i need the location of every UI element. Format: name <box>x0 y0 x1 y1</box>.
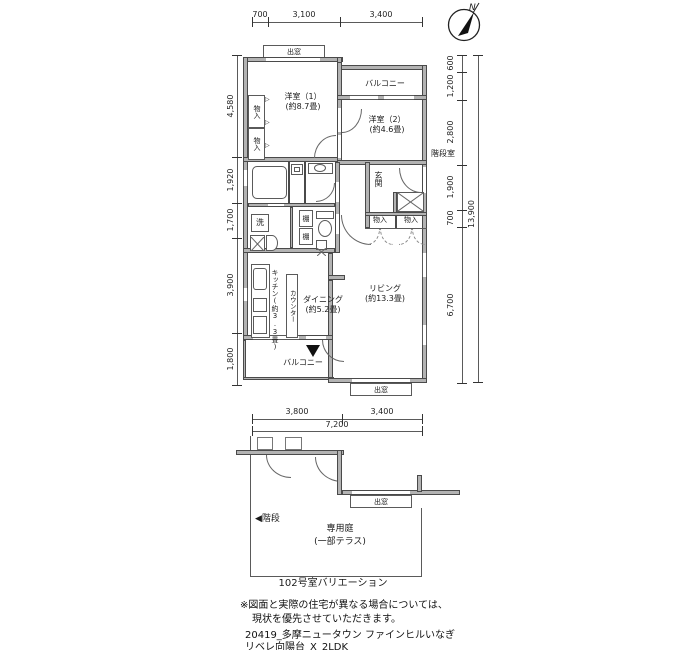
counter-label: カウンター <box>289 290 296 323</box>
water-heater-icon <box>294 167 300 172</box>
dimension-tick <box>422 414 423 424</box>
kitchen-sink-icon <box>253 268 267 290</box>
label-kitchen: キッチン(約3.3畳) <box>271 269 278 351</box>
disclaimer-line1: ※図面と実際の住宅が異なる場合については、 <box>240 596 448 611</box>
entrance-door-opening <box>423 167 426 193</box>
bedroom1-area: (約8.7畳) <box>284 102 321 112</box>
dimension-label: 6,700 <box>445 285 455 325</box>
shaft-box <box>397 192 424 212</box>
toilet-bowl-icon <box>318 220 332 237</box>
kitchen-stove-icon <box>253 316 267 334</box>
closet-box: 物入 <box>248 95 265 128</box>
window <box>384 95 414 100</box>
door-opening <box>336 214 339 234</box>
project-line2: リベレ向陽台_X_2LDK <box>245 638 348 650</box>
bay-window-label: 出窓 <box>287 47 301 57</box>
bay-window-label: 出窓 <box>374 385 388 395</box>
dimension-tick <box>457 100 467 101</box>
dimension-label: 1,920 <box>225 160 235 200</box>
paper-holder-icon <box>316 240 327 250</box>
dimension-line <box>237 55 238 385</box>
dimension-label: 1,200 <box>445 66 455 106</box>
window-opening <box>243 288 248 301</box>
bay-window-label: 出窓 <box>374 497 388 507</box>
dimension-label: 1,700 <box>225 200 235 240</box>
window-opening <box>243 170 248 186</box>
window-opening <box>422 325 427 345</box>
dimension-label: 700 <box>445 198 455 238</box>
wall <box>337 450 342 495</box>
bay-window: 出窓 <box>350 495 412 508</box>
shelf-label: 棚 <box>303 214 310 224</box>
bathtub-icon <box>252 166 287 199</box>
dimension-tick <box>232 55 242 56</box>
label-living: リビング (約13.3畳) <box>365 284 405 304</box>
washer-pan-icon <box>250 235 265 251</box>
wall <box>288 162 290 203</box>
stairs-text: 階段 <box>262 514 280 524</box>
garden-boundary-line <box>421 508 422 577</box>
dimension-tick <box>232 333 242 334</box>
wall-opening <box>352 379 410 382</box>
kitchen-unit-icon <box>253 298 267 312</box>
wall <box>395 216 397 228</box>
dimension-line <box>252 431 422 432</box>
closet-fold-door <box>367 229 380 245</box>
dimension-label: 7,200 <box>326 420 349 429</box>
compass-north-label: N <box>469 3 476 13</box>
north-arrow-icon <box>458 12 474 36</box>
closet-label: 物入 <box>253 105 260 119</box>
balcony-wall <box>243 377 334 380</box>
label-bedroom1: 洋室（1） (約8.7畳) <box>284 92 321 112</box>
dimension-label: 4,580 <box>225 86 235 126</box>
dining-area: (約5.2畳) <box>303 305 343 315</box>
dimension-tick <box>340 17 341 27</box>
bedroom2-area: (約4.6畳) <box>368 125 405 135</box>
closet-fold-door <box>380 229 393 245</box>
porch-outline <box>285 437 302 450</box>
shelf-label: 棚 <box>303 232 310 242</box>
door-arc <box>342 109 362 133</box>
floor-plan-sheet: N 700 3,100 3,400 4,580 1,920 1,700 3,90… <box>0 0 700 650</box>
label-stairwell: 階段室 <box>431 149 455 159</box>
balcony-direction-marker-icon <box>306 345 320 357</box>
door-swing-mark-icon: ▷ <box>265 142 270 150</box>
door-arc <box>322 340 344 362</box>
label-stairs: ◀階段 <box>255 514 280 525</box>
closet-box: 物入 <box>248 128 265 160</box>
bedroom1-name: 洋室（1） <box>284 92 321 102</box>
door-opening <box>338 135 341 158</box>
dining-name: ダイニング <box>303 295 343 305</box>
living-area: (約13.3畳) <box>365 294 405 304</box>
wall-opening <box>352 491 410 494</box>
closet-label: 物入 <box>253 137 260 151</box>
dimension-label: 1,800 <box>225 339 235 379</box>
closet-fold-door <box>399 229 412 245</box>
door-arc <box>314 135 336 158</box>
wall <box>304 162 306 203</box>
garden-boundary-line <box>250 436 251 577</box>
wall <box>337 65 427 70</box>
shelf-box: 棚 <box>299 210 313 227</box>
door-arc <box>316 183 335 202</box>
dimension-tick <box>268 17 269 27</box>
label-garden: 専用庭 <box>326 524 353 535</box>
toilet-tank-icon <box>316 211 334 219</box>
vanity-basin-icon <box>314 164 326 172</box>
wall <box>335 162 340 253</box>
dimension-tick <box>252 414 253 424</box>
dimension-tick <box>473 55 483 56</box>
dimension-label: 700 <box>252 10 267 19</box>
dimension-tick <box>457 165 467 166</box>
dimension-tick <box>252 426 253 436</box>
window-opening <box>422 253 427 277</box>
wall <box>417 475 422 492</box>
dimension-label-overall: 13,900 <box>466 194 476 234</box>
balcony-wall <box>243 340 246 380</box>
variation-caption: 102号室バリエーション <box>279 578 388 591</box>
door-opening <box>338 108 341 132</box>
dimension-label: 2,800 <box>445 112 455 152</box>
dimension-label: 3,800 <box>286 407 309 416</box>
window <box>350 95 378 100</box>
dimension-label: 3,100 <box>293 10 316 19</box>
dimension-label: 3,400 <box>370 10 393 19</box>
porch-outline <box>257 437 273 450</box>
dimension-tick <box>232 157 242 158</box>
dimension-line <box>478 55 479 383</box>
closet-fold-door <box>412 229 425 245</box>
closet-label: 物入 <box>404 216 418 225</box>
label-entrance: 玄関 <box>374 171 382 187</box>
door-opening <box>268 204 284 206</box>
basin-icon <box>266 235 278 251</box>
living-name: リビング <box>365 284 405 294</box>
shaft-cross-icon <box>398 193 423 211</box>
door-opening <box>336 182 339 202</box>
wall <box>290 207 293 248</box>
closet-label: 物入 <box>373 216 387 225</box>
dimension-tick <box>422 17 423 27</box>
dimension-tick <box>457 72 467 73</box>
bedroom2-name: 洋室（2） <box>368 115 405 125</box>
dimension-tick <box>422 426 423 436</box>
dimension-line <box>252 22 422 23</box>
stairs-arrow-icon: ◀ <box>255 514 262 524</box>
bay-window: 出窓 <box>350 383 412 396</box>
door-opening <box>306 336 326 339</box>
laundry-box: 洗 <box>251 214 269 232</box>
dimension-tick <box>232 385 242 386</box>
door-swing-mark-icon: ▷ <box>265 119 270 127</box>
dimension-label: 3,400 <box>371 407 394 416</box>
door-swing-mark-icon: ▷ <box>265 96 270 104</box>
label-garden-note: (一部テラス) <box>314 537 366 548</box>
wall <box>337 160 427 165</box>
door-arc <box>399 168 421 193</box>
disclaimer-line2: 現状を優先させていただきます。 <box>252 610 401 625</box>
counter-bar: カウンター <box>286 274 298 338</box>
compass-icon: N <box>444 0 486 46</box>
laundry-label: 洗 <box>256 218 264 228</box>
dimension-tick <box>457 383 467 384</box>
door-arc <box>266 455 291 478</box>
label-balcony-upper: バルコニー <box>365 79 405 89</box>
dimension-tick <box>457 55 467 56</box>
dimension-label: 3,900 <box>225 265 235 305</box>
garden-boundary-line <box>250 576 422 577</box>
shelf-box: 棚 <box>299 228 313 245</box>
label-balcony-lower: バルコニー <box>283 358 323 368</box>
wall-opening <box>266 58 320 61</box>
label-bedroom2: 洋室（2） (約4.6畳) <box>368 115 405 135</box>
label-dining: ダイニング (約5.2畳) <box>303 295 343 315</box>
dimension-tick <box>473 382 483 383</box>
dimension-line <box>462 55 463 383</box>
